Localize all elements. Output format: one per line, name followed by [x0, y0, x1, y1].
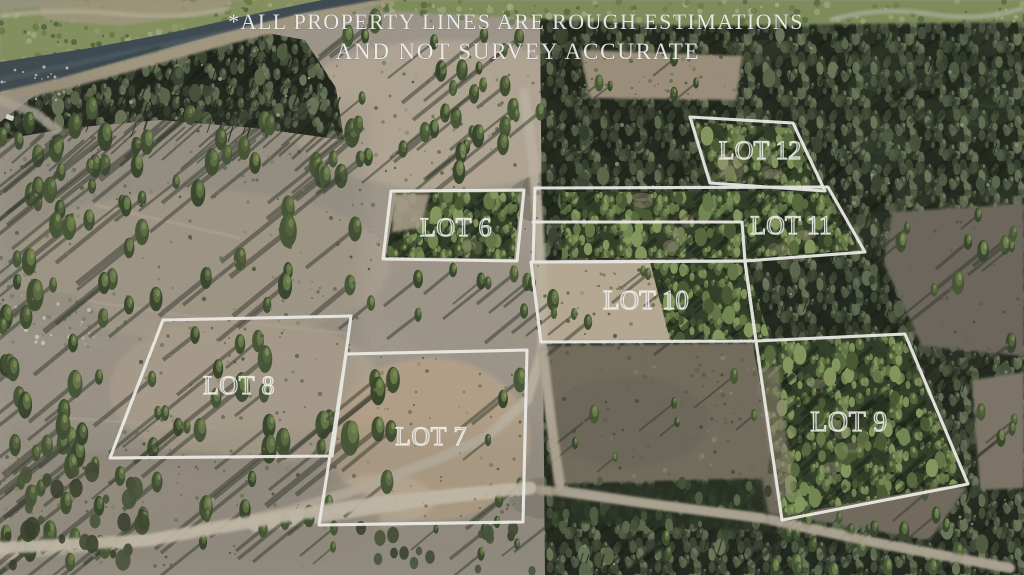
- svg-text:*ALL PROPERTY LINES ARE ROUGH: *ALL PROPERTY LINES ARE ROUGH ESTIMATION…: [228, 9, 804, 34]
- svg-text:LOT 12: LOT 12: [719, 136, 802, 165]
- svg-text:LOT 6: LOT 6: [420, 213, 492, 242]
- svg-text:LOT 11: LOT 11: [750, 211, 832, 240]
- svg-text:LOT 8: LOT 8: [203, 371, 275, 400]
- svg-text:AND NOT SURVEY ACCURATE: AND NOT SURVEY ACCURATE: [336, 39, 701, 64]
- svg-text:LOT 7: LOT 7: [395, 422, 467, 451]
- svg-text:LOT 10: LOT 10: [603, 285, 689, 315]
- svg-text:LOT 9: LOT 9: [810, 407, 887, 438]
